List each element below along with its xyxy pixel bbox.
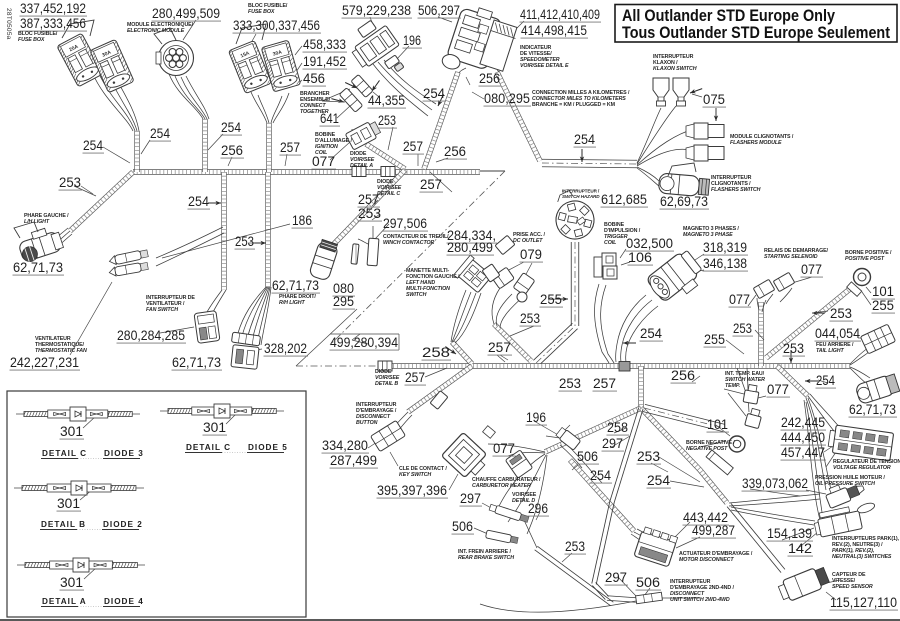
svg-text:258: 258 xyxy=(607,420,628,435)
svg-text:254: 254 xyxy=(150,126,170,141)
svg-text:253: 253 xyxy=(520,311,540,326)
svg-text:KLAXON SWITCH: KLAXON SWITCH xyxy=(653,66,697,72)
svg-text:456: 456 xyxy=(303,71,325,86)
svg-text:257: 257 xyxy=(358,192,379,207)
svg-text:395,397,396: 395,397,396 xyxy=(377,483,447,498)
svg-text:253: 253 xyxy=(637,449,660,464)
svg-text:254: 254 xyxy=(816,373,835,388)
svg-text:115,127,110: 115,127,110 xyxy=(830,595,897,610)
svg-text:DIODE 4: DIODE 4 xyxy=(104,597,144,606)
svg-text:MAGNETO 3 PHASE: MAGNETO 3 PHASE xyxy=(683,232,733,238)
svg-text:FLASHERS MODULE: FLASHERS MODULE xyxy=(730,140,782,146)
svg-text:414,498,415: 414,498,415 xyxy=(521,23,587,38)
svg-text:254: 254 xyxy=(574,132,595,147)
svg-text:242,227,231: 242,227,231 xyxy=(10,355,79,370)
svg-text:28T0505a: 28T0505a xyxy=(5,8,12,40)
svg-text:THERMOSTATIC FAN: THERMOSTATIC FAN xyxy=(35,348,87,354)
svg-text:253: 253 xyxy=(559,376,581,391)
svg-text:339,073,062: 339,073,062 xyxy=(742,476,808,491)
svg-text:DETAIL D: DETAIL D xyxy=(512,498,535,504)
svg-text:154,139: 154,139 xyxy=(767,526,812,541)
svg-text:458,333: 458,333 xyxy=(303,37,346,52)
svg-text:444,450: 444,450 xyxy=(781,430,825,445)
svg-text:DETAIL B: DETAIL B xyxy=(375,381,398,387)
svg-text:257: 257 xyxy=(280,140,300,155)
svg-text:186: 186 xyxy=(292,213,312,228)
svg-text:334,280: 334,280 xyxy=(322,438,368,453)
svg-text:FAN SWITCH: FAN SWITCH xyxy=(146,307,178,313)
svg-text:TAIL LIGHT: TAIL LIGHT xyxy=(816,348,845,354)
svg-text:297: 297 xyxy=(605,570,627,585)
svg-text:287,499: 287,499 xyxy=(330,453,377,468)
svg-text:142: 142 xyxy=(788,541,812,556)
svg-text:255: 255 xyxy=(704,332,725,347)
svg-text:499,287: 499,287 xyxy=(692,523,735,538)
svg-text:62,71,73: 62,71,73 xyxy=(13,260,63,275)
svg-text:077: 077 xyxy=(801,262,822,277)
svg-text:297,506: 297,506 xyxy=(383,216,427,231)
svg-text:032,500: 032,500 xyxy=(626,236,673,251)
svg-text:DIODE 2: DIODE 2 xyxy=(103,520,143,529)
svg-text:106: 106 xyxy=(628,250,652,265)
svg-text:256: 256 xyxy=(444,144,466,159)
svg-text:318,319: 318,319 xyxy=(703,240,747,255)
svg-text:255: 255 xyxy=(540,292,562,307)
svg-text:BRANCHE = KM / PLUGGED = KM: BRANCHE = KM / PLUGGED = KM xyxy=(532,102,616,108)
svg-text:DETAIL A: DETAIL A xyxy=(42,597,87,606)
svg-text:253: 253 xyxy=(59,175,81,190)
svg-text:256: 256 xyxy=(479,71,500,86)
svg-text:NEUTRAL(3) SWITCHES: NEUTRAL(3) SWITCHES xyxy=(832,554,892,560)
svg-text:253: 253 xyxy=(235,234,254,249)
svg-text:254: 254 xyxy=(590,468,611,483)
svg-text:CARBURETOR HEATER: CARBURETOR HEATER xyxy=(472,483,531,489)
svg-text:REAR BRAKE SWITCH: REAR BRAKE SWITCH xyxy=(458,555,514,561)
svg-text:DC OUTLET: DC OUTLET xyxy=(513,238,543,244)
svg-text:MOTOR DISCONNECT: MOTOR DISCONNECT xyxy=(679,557,734,563)
svg-text:62,69,73: 62,69,73 xyxy=(660,194,708,209)
svg-text:101: 101 xyxy=(707,417,728,432)
svg-text:TOGETHER: TOGETHER xyxy=(300,109,329,115)
svg-text:DETAIL C: DETAIL C xyxy=(186,443,231,452)
svg-text:077: 077 xyxy=(767,382,789,397)
svg-text:SWITCH: SWITCH xyxy=(406,292,427,298)
svg-text:DIODE 5: DIODE 5 xyxy=(248,443,288,452)
svg-text:333,300,337,456: 333,300,337,456 xyxy=(233,18,320,33)
svg-text:506: 506 xyxy=(636,575,660,590)
svg-text:SPEED SENSOR: SPEED SENSOR xyxy=(832,584,873,590)
svg-text:297: 297 xyxy=(460,491,481,506)
svg-text:44,355: 44,355 xyxy=(368,93,405,108)
svg-text:62,71,73: 62,71,73 xyxy=(172,355,221,370)
svg-text:257: 257 xyxy=(420,177,442,192)
svg-text:196: 196 xyxy=(403,33,421,48)
svg-text:ELECTRONIC MODULE: ELECTRONIC MODULE xyxy=(127,28,185,34)
svg-text:387,333,456: 387,333,456 xyxy=(20,16,86,31)
svg-text:256: 256 xyxy=(221,143,243,158)
svg-text:FUSE BOX: FUSE BOX xyxy=(248,9,275,15)
svg-text:080,295: 080,295 xyxy=(484,91,530,106)
svg-text:DETAIL A: DETAIL A xyxy=(350,163,373,169)
svg-text:612,685: 612,685 xyxy=(601,192,647,207)
svg-text:62,71,73: 62,71,73 xyxy=(272,278,319,293)
svg-text:411,412,410,409: 411,412,410,409 xyxy=(520,7,600,22)
svg-text:337,452,192: 337,452,192 xyxy=(20,1,86,16)
svg-text:257: 257 xyxy=(593,376,616,391)
svg-text:579,229,238: 579,229,238 xyxy=(342,3,411,18)
svg-text:253: 253 xyxy=(378,113,396,128)
svg-text:KEY SWITCH: KEY SWITCH xyxy=(399,472,431,478)
svg-text:254: 254 xyxy=(423,86,445,101)
svg-text:NEGATIVE POST: NEGATIVE POST xyxy=(686,446,728,452)
svg-text:DETAIL C: DETAIL C xyxy=(377,191,400,197)
svg-text:328,202: 328,202 xyxy=(264,341,307,356)
svg-text:253: 253 xyxy=(830,306,852,321)
svg-text:506: 506 xyxy=(577,449,598,464)
svg-text:506: 506 xyxy=(452,519,473,534)
svg-text:280,499,509: 280,499,509 xyxy=(152,6,220,21)
svg-text:506,297: 506,297 xyxy=(418,3,460,18)
svg-text:L/H LIGHT: L/H LIGHT xyxy=(24,219,50,225)
svg-text:254: 254 xyxy=(83,138,103,153)
svg-text:044,054: 044,054 xyxy=(815,326,860,341)
svg-text:DETAIL C: DETAIL C xyxy=(42,449,87,458)
svg-text:301: 301 xyxy=(57,496,80,511)
svg-text:FUSE BOX: FUSE BOX xyxy=(18,37,45,43)
svg-text:254: 254 xyxy=(647,473,670,488)
svg-text:255: 255 xyxy=(872,298,894,313)
svg-text:TEMP.: TEMP. xyxy=(725,383,741,389)
svg-text:191,452: 191,452 xyxy=(303,54,346,69)
svg-text:295: 295 xyxy=(333,294,354,309)
svg-text:242,445: 242,445 xyxy=(781,415,825,430)
svg-text:SWITCH HAZARD: SWITCH HAZARD xyxy=(562,194,600,199)
svg-text:BUTTON: BUTTON xyxy=(356,420,378,426)
svg-text:FLASHERS SWITCH: FLASHERS SWITCH xyxy=(711,187,761,193)
svg-text:457,447: 457,447 xyxy=(781,445,825,460)
svg-text:253: 253 xyxy=(358,206,381,221)
svg-text:COIL: COIL xyxy=(315,150,327,156)
svg-text:256: 256 xyxy=(671,368,695,383)
svg-text:WINCH CONTACTOR: WINCH CONTACTOR xyxy=(383,240,435,246)
svg-text:301: 301 xyxy=(60,424,83,439)
svg-text:COIL: COIL xyxy=(604,240,616,246)
svg-text:297: 297 xyxy=(602,436,623,451)
svg-text:DIODE 3: DIODE 3 xyxy=(104,449,144,458)
svg-text:346,138: 346,138 xyxy=(703,256,747,271)
svg-text:077: 077 xyxy=(729,292,750,307)
svg-text:280,284,285: 280,284,285 xyxy=(117,328,185,343)
svg-text:257: 257 xyxy=(488,340,511,355)
svg-text:UNIT SWITCH 2WD-4WD: UNIT SWITCH 2WD-4WD xyxy=(670,597,730,603)
svg-text:62,71,73: 62,71,73 xyxy=(849,402,896,417)
svg-text:257: 257 xyxy=(403,139,423,154)
svg-text:075: 075 xyxy=(703,92,725,107)
svg-text:258: 258 xyxy=(422,345,450,360)
svg-text:254: 254 xyxy=(188,194,209,209)
svg-text:254: 254 xyxy=(221,120,241,135)
svg-text:253: 253 xyxy=(783,341,804,356)
svg-text:499,280,394: 499,280,394 xyxy=(330,335,398,350)
svg-text:079: 079 xyxy=(520,247,542,262)
svg-text:POSITIVE POST: POSITIVE POST xyxy=(845,256,885,262)
svg-text:196: 196 xyxy=(526,410,546,425)
svg-text:STARTING SELENOID: STARTING SELENOID xyxy=(764,254,818,260)
svg-text:301: 301 xyxy=(60,575,83,590)
svg-text:257: 257 xyxy=(405,370,425,385)
svg-text:077: 077 xyxy=(312,154,335,169)
svg-text:254: 254 xyxy=(640,326,662,341)
svg-text:253: 253 xyxy=(733,321,752,336)
svg-text:301: 301 xyxy=(203,420,226,435)
svg-text:077: 077 xyxy=(493,441,515,456)
svg-text:R/H LIGHT: R/H LIGHT xyxy=(279,300,305,306)
svg-text:280,499: 280,499 xyxy=(447,240,493,255)
svg-text:OIL PRESSURE SWITCH: OIL PRESSURE SWITCH xyxy=(815,481,875,487)
svg-text:Tous Outlander STD Europe Seul: Tous Outlander STD Europe Seulement xyxy=(622,23,890,42)
svg-text:DETAIL B: DETAIL B xyxy=(41,520,86,529)
svg-text:101: 101 xyxy=(872,284,894,299)
svg-text:VOIR/SEE DETAIL E: VOIR/SEE DETAIL E xyxy=(520,63,569,69)
svg-text:253: 253 xyxy=(565,539,585,554)
svg-text:VOLTAGE REGULATOR: VOLTAGE REGULATOR xyxy=(833,465,891,471)
